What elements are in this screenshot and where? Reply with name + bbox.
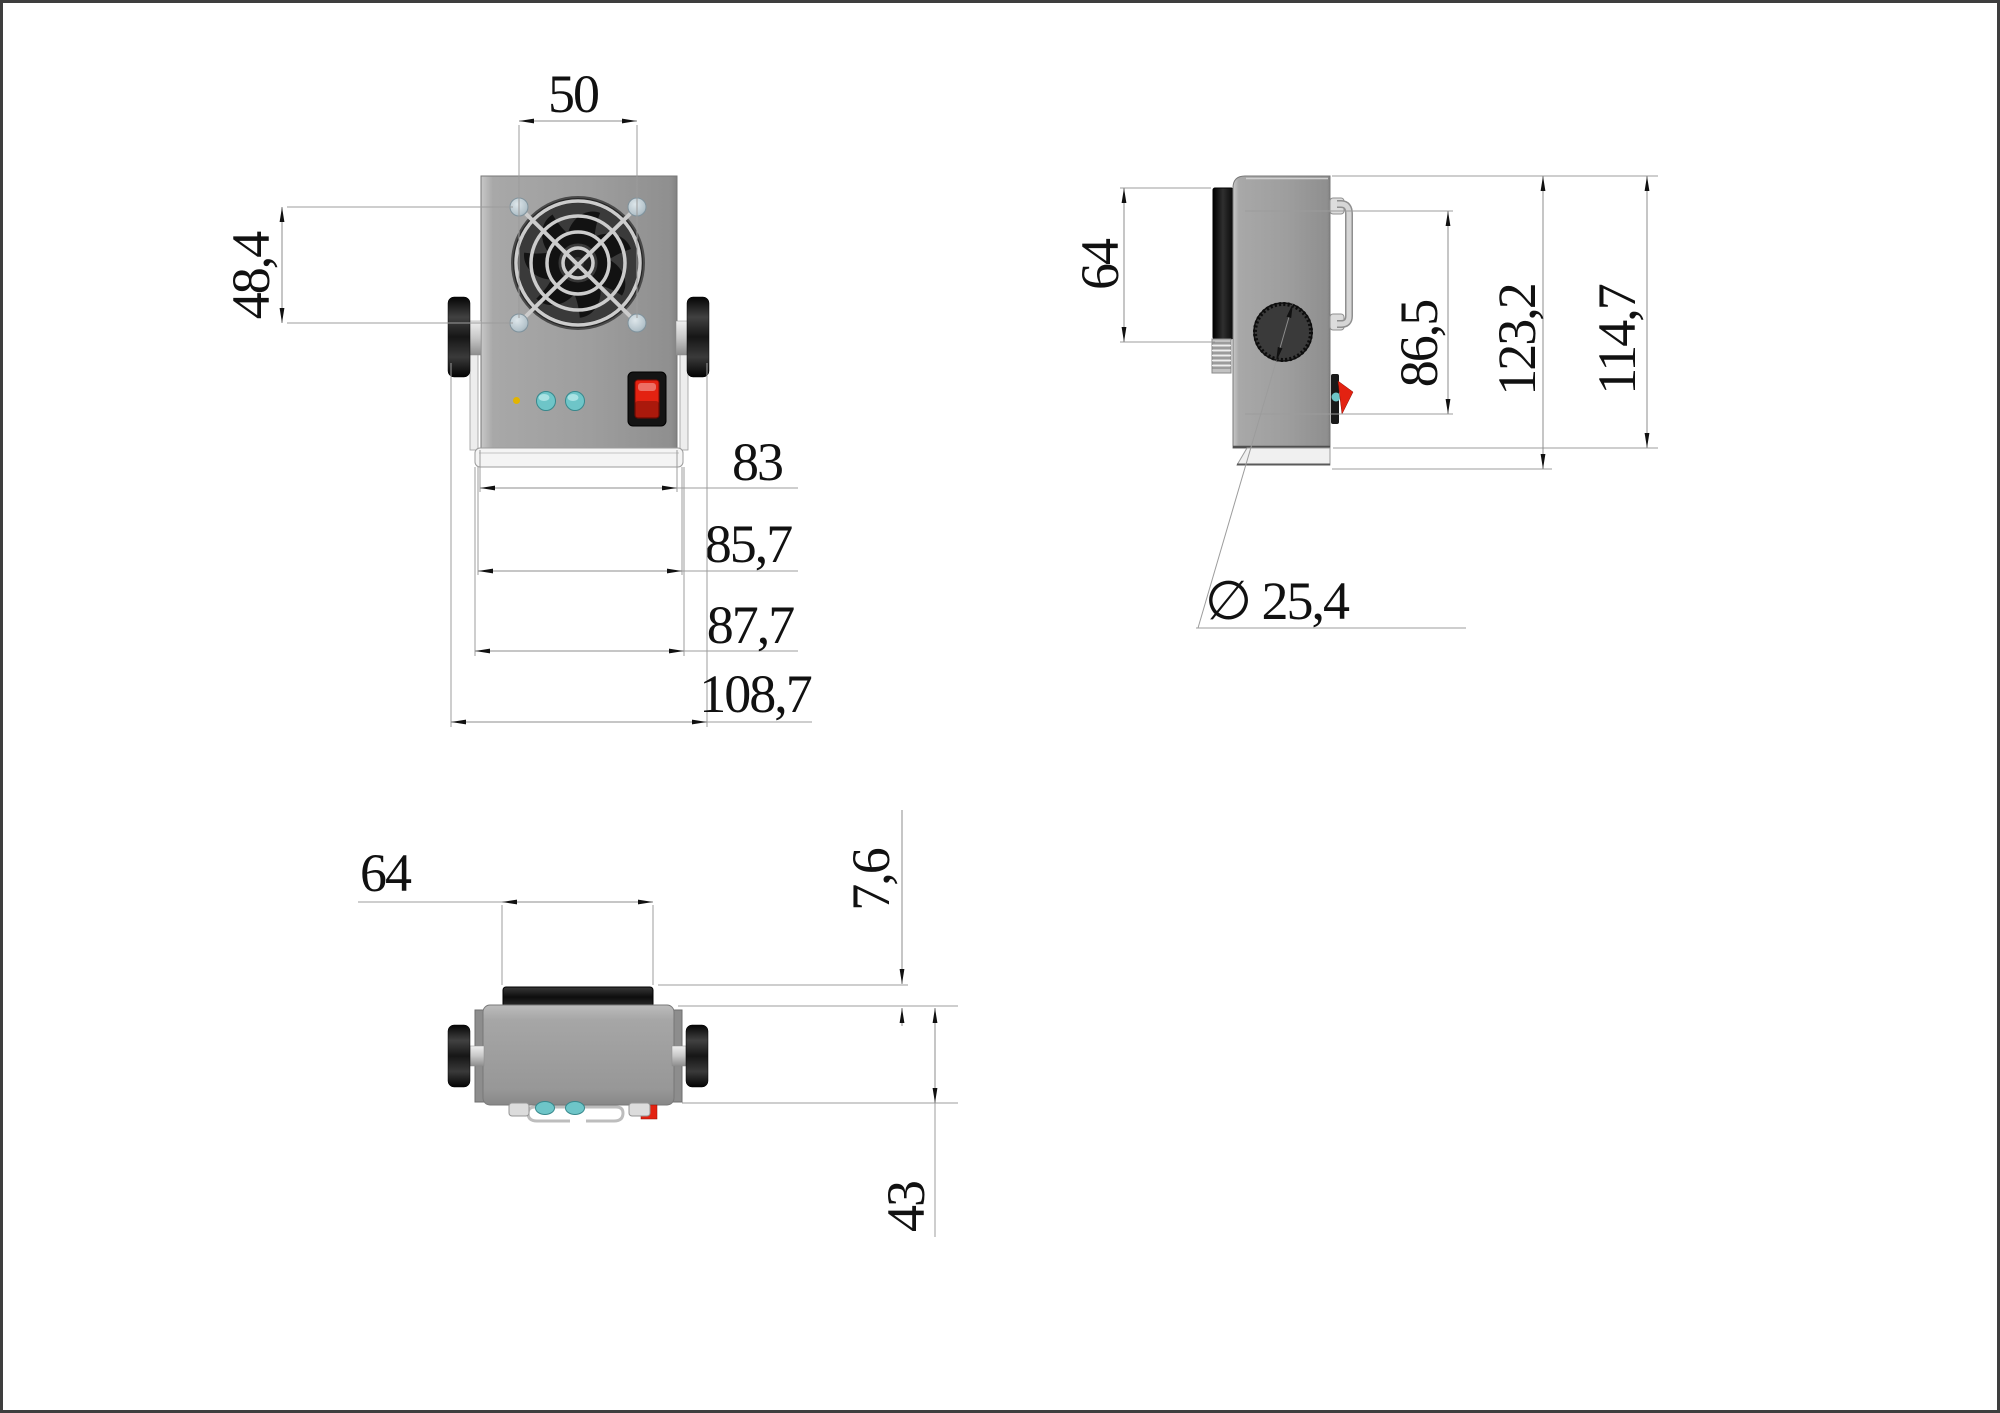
indicator-led-yellow <box>513 397 520 404</box>
dim-label-handle-to-switch: 86,5 <box>1389 301 1449 388</box>
side-knob-left <box>448 1025 470 1087</box>
bracket-foot-tab-right <box>629 1103 650 1116</box>
dim-label-fan-screw-width: 50 <box>548 64 598 124</box>
knob-shaft-right <box>676 321 688 355</box>
side-knob-right <box>686 1025 708 1087</box>
bracket-foot <box>1237 448 1330 465</box>
side-view: 64 86,5 123,2 114,7 ∅ 25,4 <box>1070 176 1658 631</box>
knob-shaft-left <box>469 321 481 355</box>
front-view: 50 48,4 83 85,7 87,7 <box>221 64 812 727</box>
handle-wire <box>1337 204 1349 324</box>
button-teal-1 <box>536 1102 555 1115</box>
knob-shaft-right <box>672 1046 686 1066</box>
dim-label-knob-diameter: ∅ 25,4 <box>1205 571 1350 631</box>
side-switch <box>1331 374 1353 424</box>
bottom-view: 64 7,6 43 <box>358 810 958 1237</box>
bracket-foot-tab-left <box>509 1103 529 1116</box>
side-switch-red-rocker <box>1338 381 1353 414</box>
side-switch-teal-dot <box>1332 393 1341 402</box>
power-switch-rocker-shade <box>635 401 659 418</box>
dim-label-front-panel-height: 64 <box>1070 238 1130 290</box>
dim-label-fan-panel-width: 64 <box>360 843 412 903</box>
dim-label-body-depth: 43 <box>876 1182 936 1232</box>
drawing-canvas: 50 48,4 83 85,7 87,7 <box>0 0 2000 1413</box>
dim-label-overall-width: 108,7 <box>699 664 812 724</box>
dim-label-bracket-inner-width: 85,7 <box>705 514 793 574</box>
threaded-connector <box>1212 339 1231 373</box>
dim-label-body-width: 83 <box>732 432 782 492</box>
bottom-body <box>483 1005 674 1105</box>
knurled-knob <box>1254 303 1312 361</box>
power-switch-rocker-gloss <box>638 383 656 391</box>
button-teal-2-highlight <box>568 394 579 401</box>
front-device <box>448 176 709 467</box>
knob-shaft-left <box>470 1046 484 1066</box>
side-knob-right <box>687 297 709 377</box>
bottom-device <box>448 987 708 1124</box>
button-teal-2 <box>566 1102 585 1115</box>
dim-label-body-height: 114,7 <box>1587 284 1647 394</box>
dim-label-panel-protrusion: 7,6 <box>841 848 901 911</box>
button-teal-1-highlight <box>539 394 550 401</box>
bracket-plate <box>475 448 683 467</box>
side-device <box>1212 176 1353 465</box>
dim-label-overall-height: 123,2 <box>1487 284 1547 396</box>
handle <box>1330 198 1349 330</box>
fan-panel-edge <box>503 987 653 1007</box>
front-panel-edge <box>1213 188 1233 339</box>
dim-label-fan-screw-height: 48,4 <box>221 231 281 320</box>
side-dimensions: 64 86,5 123,2 114,7 ∅ 25,4 <box>1070 176 1658 631</box>
page-border <box>2 2 1999 1412</box>
dim-label-bracket-outer-width: 87,7 <box>707 595 795 655</box>
